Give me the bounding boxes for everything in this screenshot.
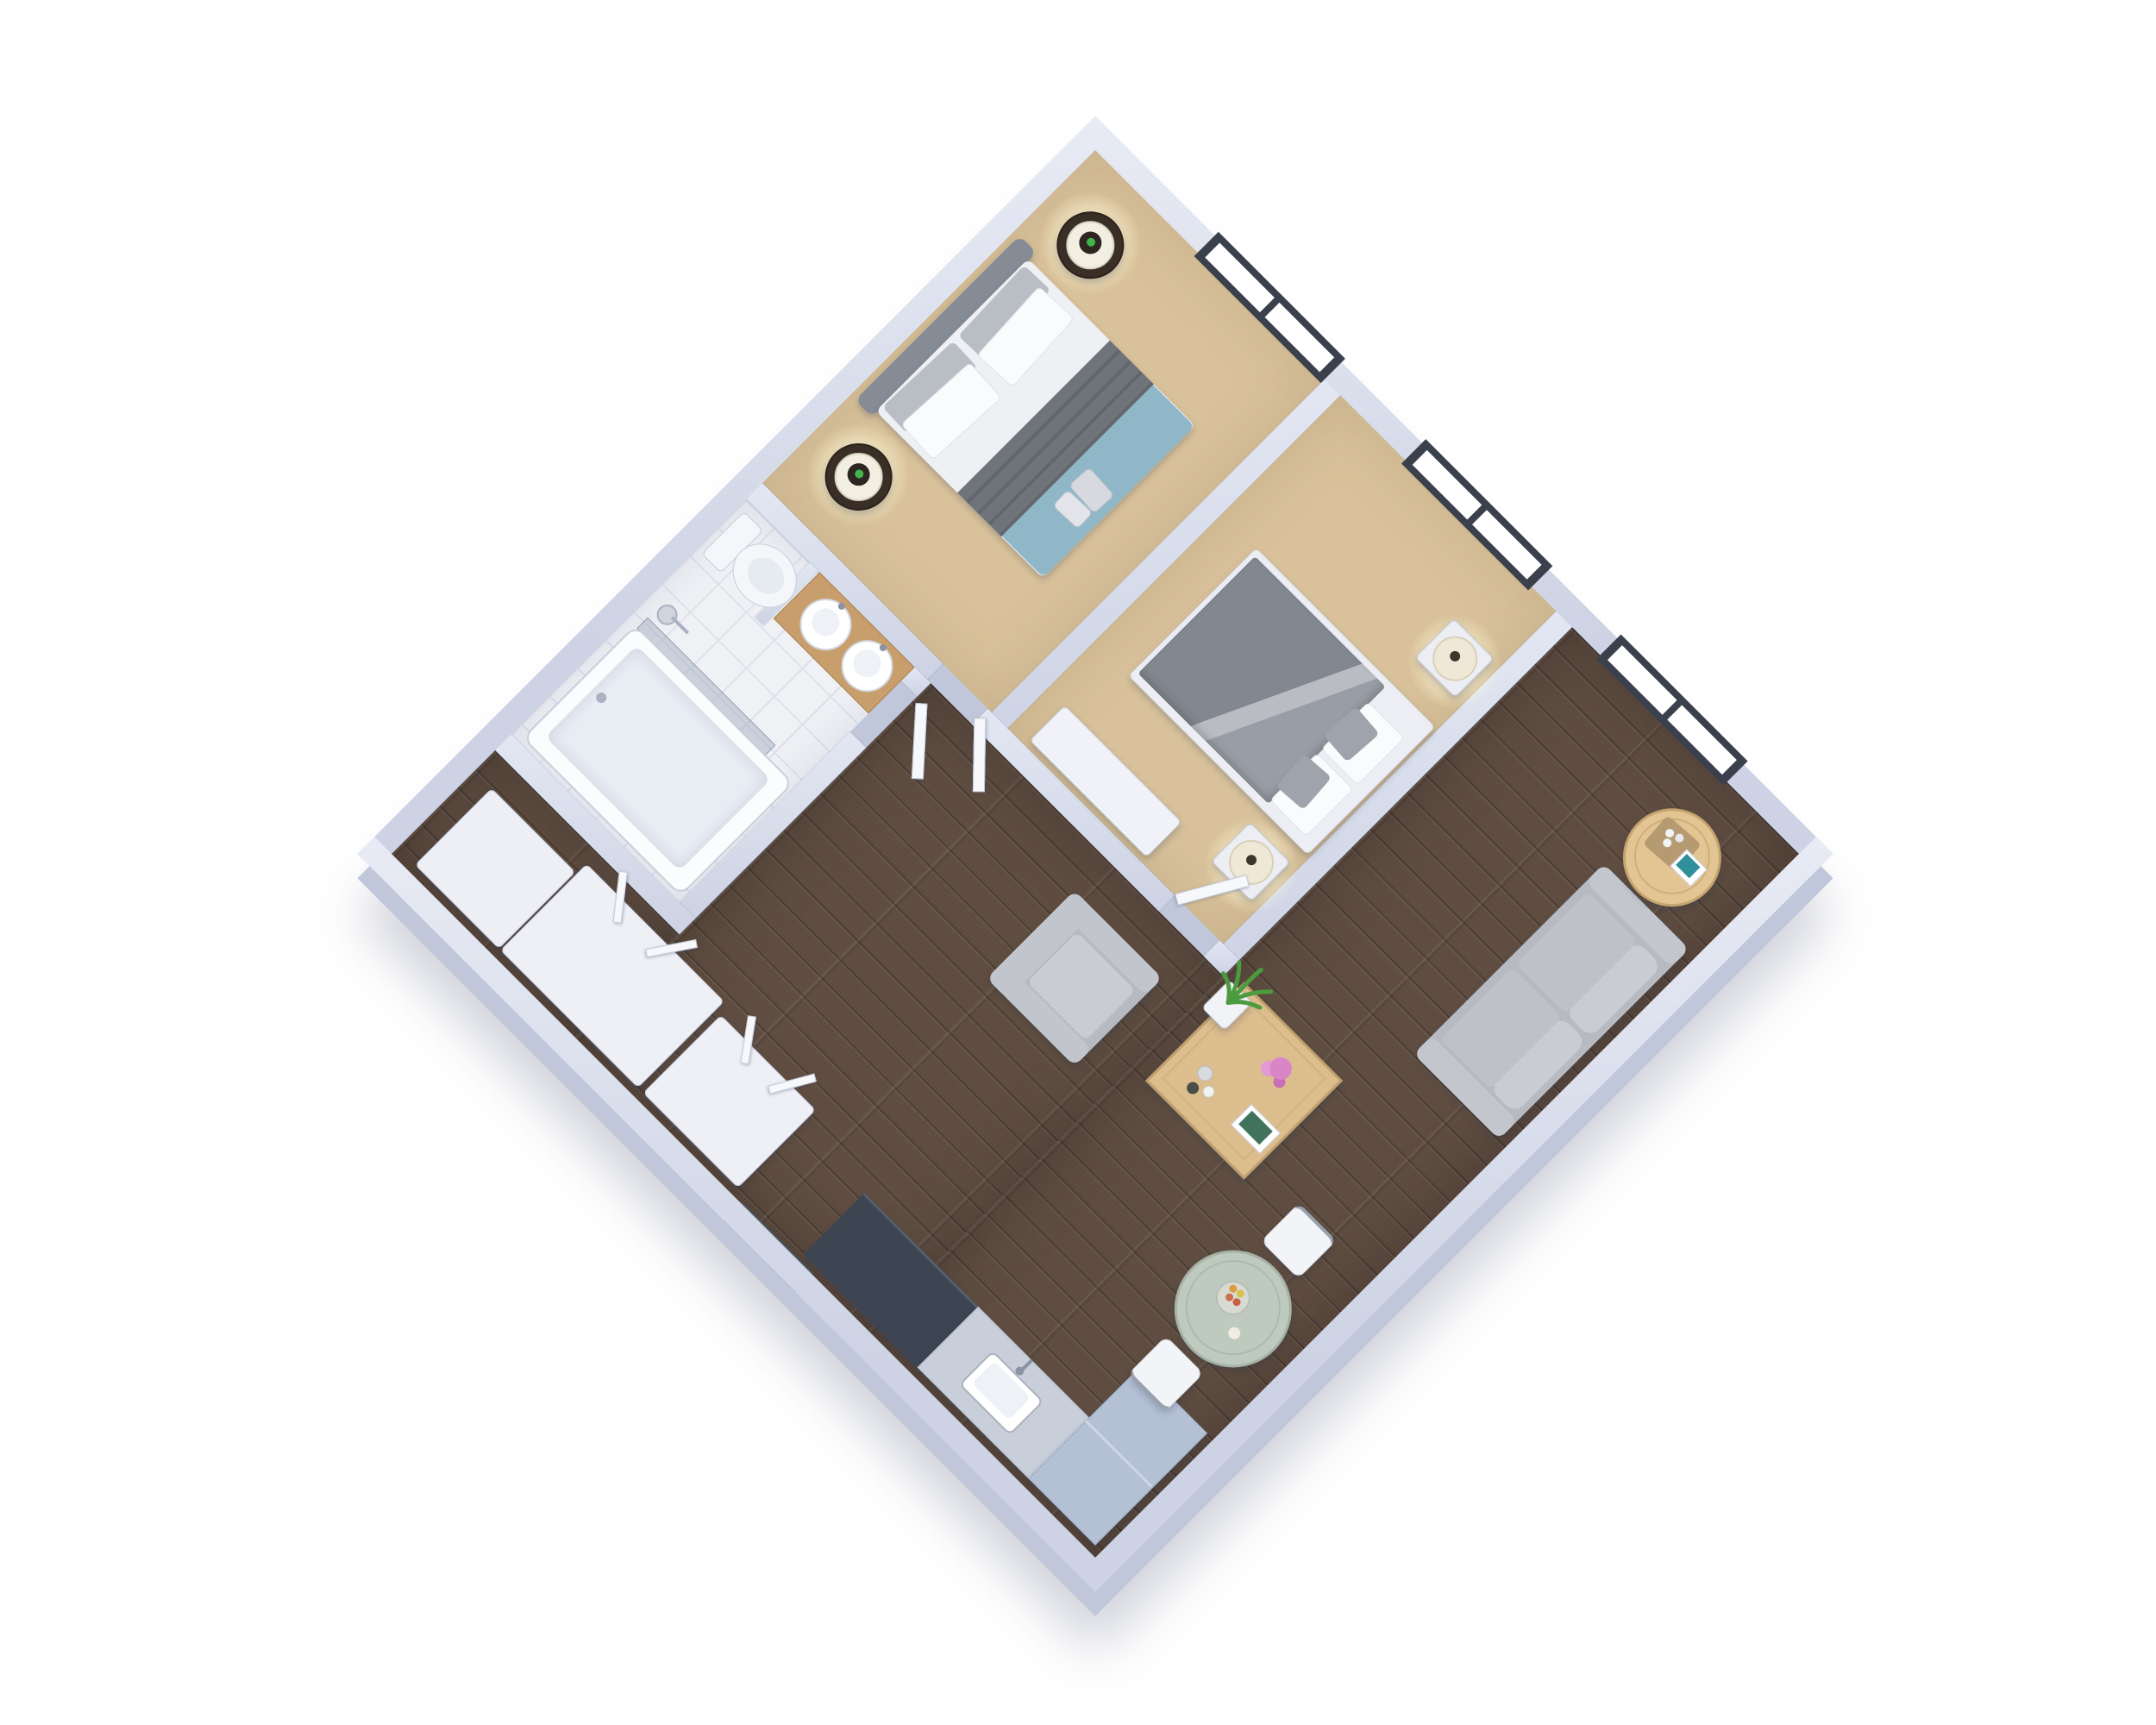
apartment xyxy=(357,116,1833,1591)
bedroom1-door-leaf xyxy=(973,718,986,792)
apartment-rotated-wrap xyxy=(357,116,1833,1591)
floor-plan-canvas xyxy=(0,0,2156,1725)
